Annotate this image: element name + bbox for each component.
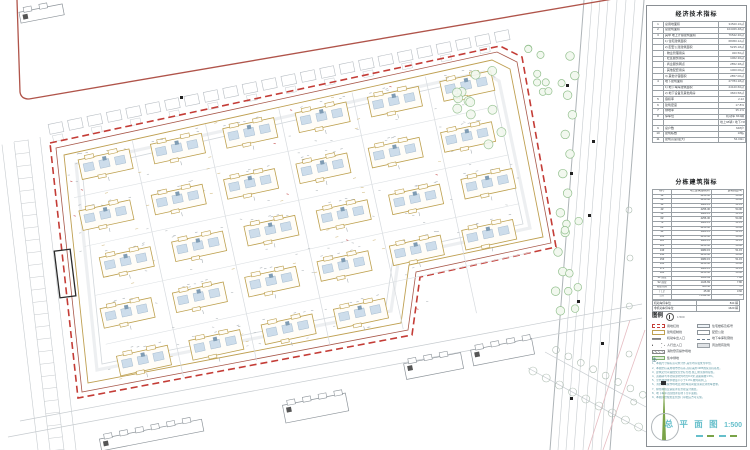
existing-building	[470, 334, 535, 365]
building-footprint	[188, 325, 247, 367]
building-footprint	[77, 143, 135, 186]
legend-item: 周边既有建筑	[697, 342, 742, 348]
building-footprint	[316, 246, 374, 288]
building-footprint	[170, 225, 229, 268]
olive-symbol-icon	[652, 330, 665, 335]
dashdot-symbol-icon	[697, 339, 710, 340]
site-interior	[58, 60, 546, 393]
building-footprint	[243, 261, 301, 304]
building-footprint	[260, 309, 320, 352]
building-footprint	[243, 211, 301, 253]
legend-scale-note: 1:500	[677, 315, 685, 319]
building-footprint	[98, 241, 156, 284]
table-row: 合计76542.30—	[653, 294, 744, 299]
drawing-title: 总 平 面 图	[665, 419, 720, 429]
building-footprint	[461, 214, 519, 257]
building-footprint	[440, 118, 497, 159]
legend-title: 图例	[652, 314, 663, 320]
economic-indicators-table: 1总用地面积34520.16㎡2总建筑面积104326.48㎡3其中 地上计容建…	[652, 21, 746, 143]
building-footprint	[295, 148, 353, 191]
building-footprint	[78, 194, 138, 237]
building-footprint	[332, 294, 390, 336]
existing-building	[99, 415, 204, 450]
building-footprint	[150, 179, 208, 222]
building-footprint	[99, 293, 157, 335]
building-footprint	[460, 163, 518, 205]
table-row: 非机动车停车位1620 辆	[653, 306, 740, 311]
rect2-symbol-icon	[697, 330, 710, 335]
legend: 图例 1:500 用地红线建筑控制线机动车出入口人行出入口消防登高操作场地集中绿…	[652, 313, 742, 361]
trees	[525, 45, 646, 431]
title-block: 总 平 面 图 1:500	[665, 414, 742, 437]
per-building-indicators-title: 分栋建筑指标	[647, 180, 746, 186]
north-symbol-icon	[666, 313, 674, 321]
drawing-scale: 1:500	[724, 422, 742, 429]
existing-building	[18, 0, 64, 23]
drawing-sheet: 经济技术指标 1总用地面积34520.16㎡2总建筑面积104326.48㎡3其…	[0, 0, 750, 450]
info-panel: 经济技术指标 1总用地面积34520.16㎡2总建筑面积104326.48㎡3其…	[646, 5, 747, 447]
building-footprint	[388, 181, 445, 222]
gray-symbol-icon	[697, 343, 710, 348]
building-footprint	[223, 164, 281, 206]
north-tip-icon	[661, 381, 666, 385]
rect-symbol-icon	[697, 324, 710, 329]
economic-indicators-title: 经济技术指标	[647, 12, 746, 18]
parking-summary-table: 机动车停车位844 辆非机动车停车位1620 辆	[652, 300, 740, 312]
per-building-indicators-table: 栋号地上建筑面积(㎡)建筑高度(m)1#4256.3054.002#4256.3…	[652, 189, 744, 300]
existing-building	[282, 389, 349, 423]
building-footprint	[171, 277, 229, 320]
scale-bar	[696, 435, 742, 437]
building-footprint	[366, 81, 424, 124]
red-dash-symbol-icon	[652, 324, 665, 329]
table-row: 11建筑高度(最大)54.00m	[653, 137, 746, 143]
arrow-symbol-icon	[652, 337, 665, 342]
building-footprint	[222, 114, 279, 155]
site-plan-drawing	[0, 0, 646, 450]
hatch-symbol-icon	[652, 350, 665, 355]
arrow-open-symbol-icon	[652, 343, 665, 348]
building-footprint	[367, 132, 425, 175]
building-footprint	[294, 96, 352, 139]
building-footprint	[315, 194, 373, 237]
